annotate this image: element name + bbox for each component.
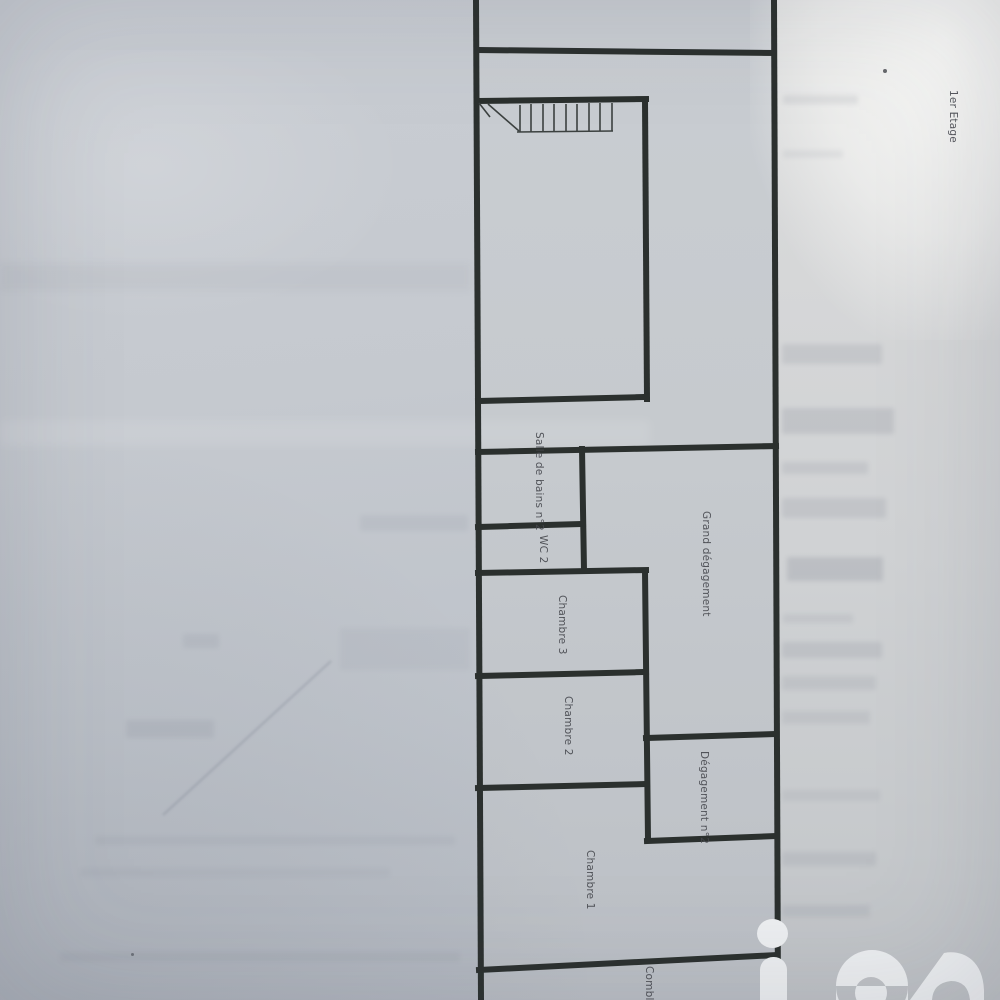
photographed-floor-plan-page: 1er Etage Salle de bains n°2 WC 2 Chambr… bbox=[0, 0, 1000, 1000]
watermark-letter-a bbox=[836, 950, 908, 1000]
watermark-letter-d bbox=[910, 952, 984, 1000]
watermark-letters-ad bbox=[0, 0, 1000, 1000]
